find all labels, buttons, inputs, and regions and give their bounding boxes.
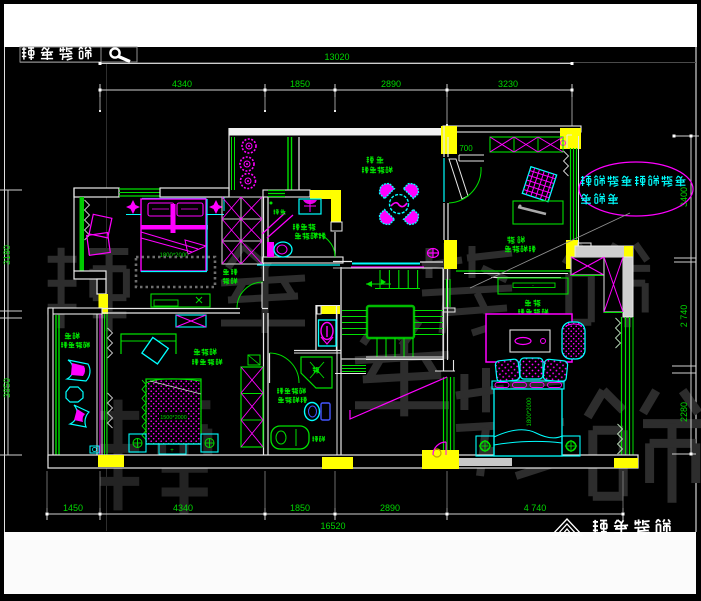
svg-text:4340: 4340	[172, 79, 192, 89]
svg-text:13020: 13020	[324, 52, 349, 62]
svg-text:1500*2000: 1500*2000	[160, 415, 187, 421]
svg-text:2890: 2890	[380, 503, 400, 513]
svg-text:4 740: 4 740	[524, 503, 547, 513]
svg-text:3180: 3180	[2, 245, 12, 265]
svg-text:3850: 3850	[2, 378, 12, 398]
svg-text:2 740: 2 740	[679, 305, 689, 328]
svg-text:+: +	[170, 448, 174, 454]
svg-text:700: 700	[459, 144, 473, 153]
svg-text:16520: 16520	[320, 521, 345, 531]
svg-text:1450: 1450	[63, 503, 83, 513]
svg-text:3230: 3230	[498, 79, 518, 89]
svg-text:1850: 1850	[290, 79, 310, 89]
svg-text:4340: 4340	[173, 503, 193, 513]
svg-text:1850: 1850	[290, 503, 310, 513]
svg-text:2890: 2890	[381, 79, 401, 89]
svg-text:1800*2000: 1800*2000	[527, 397, 533, 427]
svg-text:2280: 2280	[679, 402, 689, 422]
